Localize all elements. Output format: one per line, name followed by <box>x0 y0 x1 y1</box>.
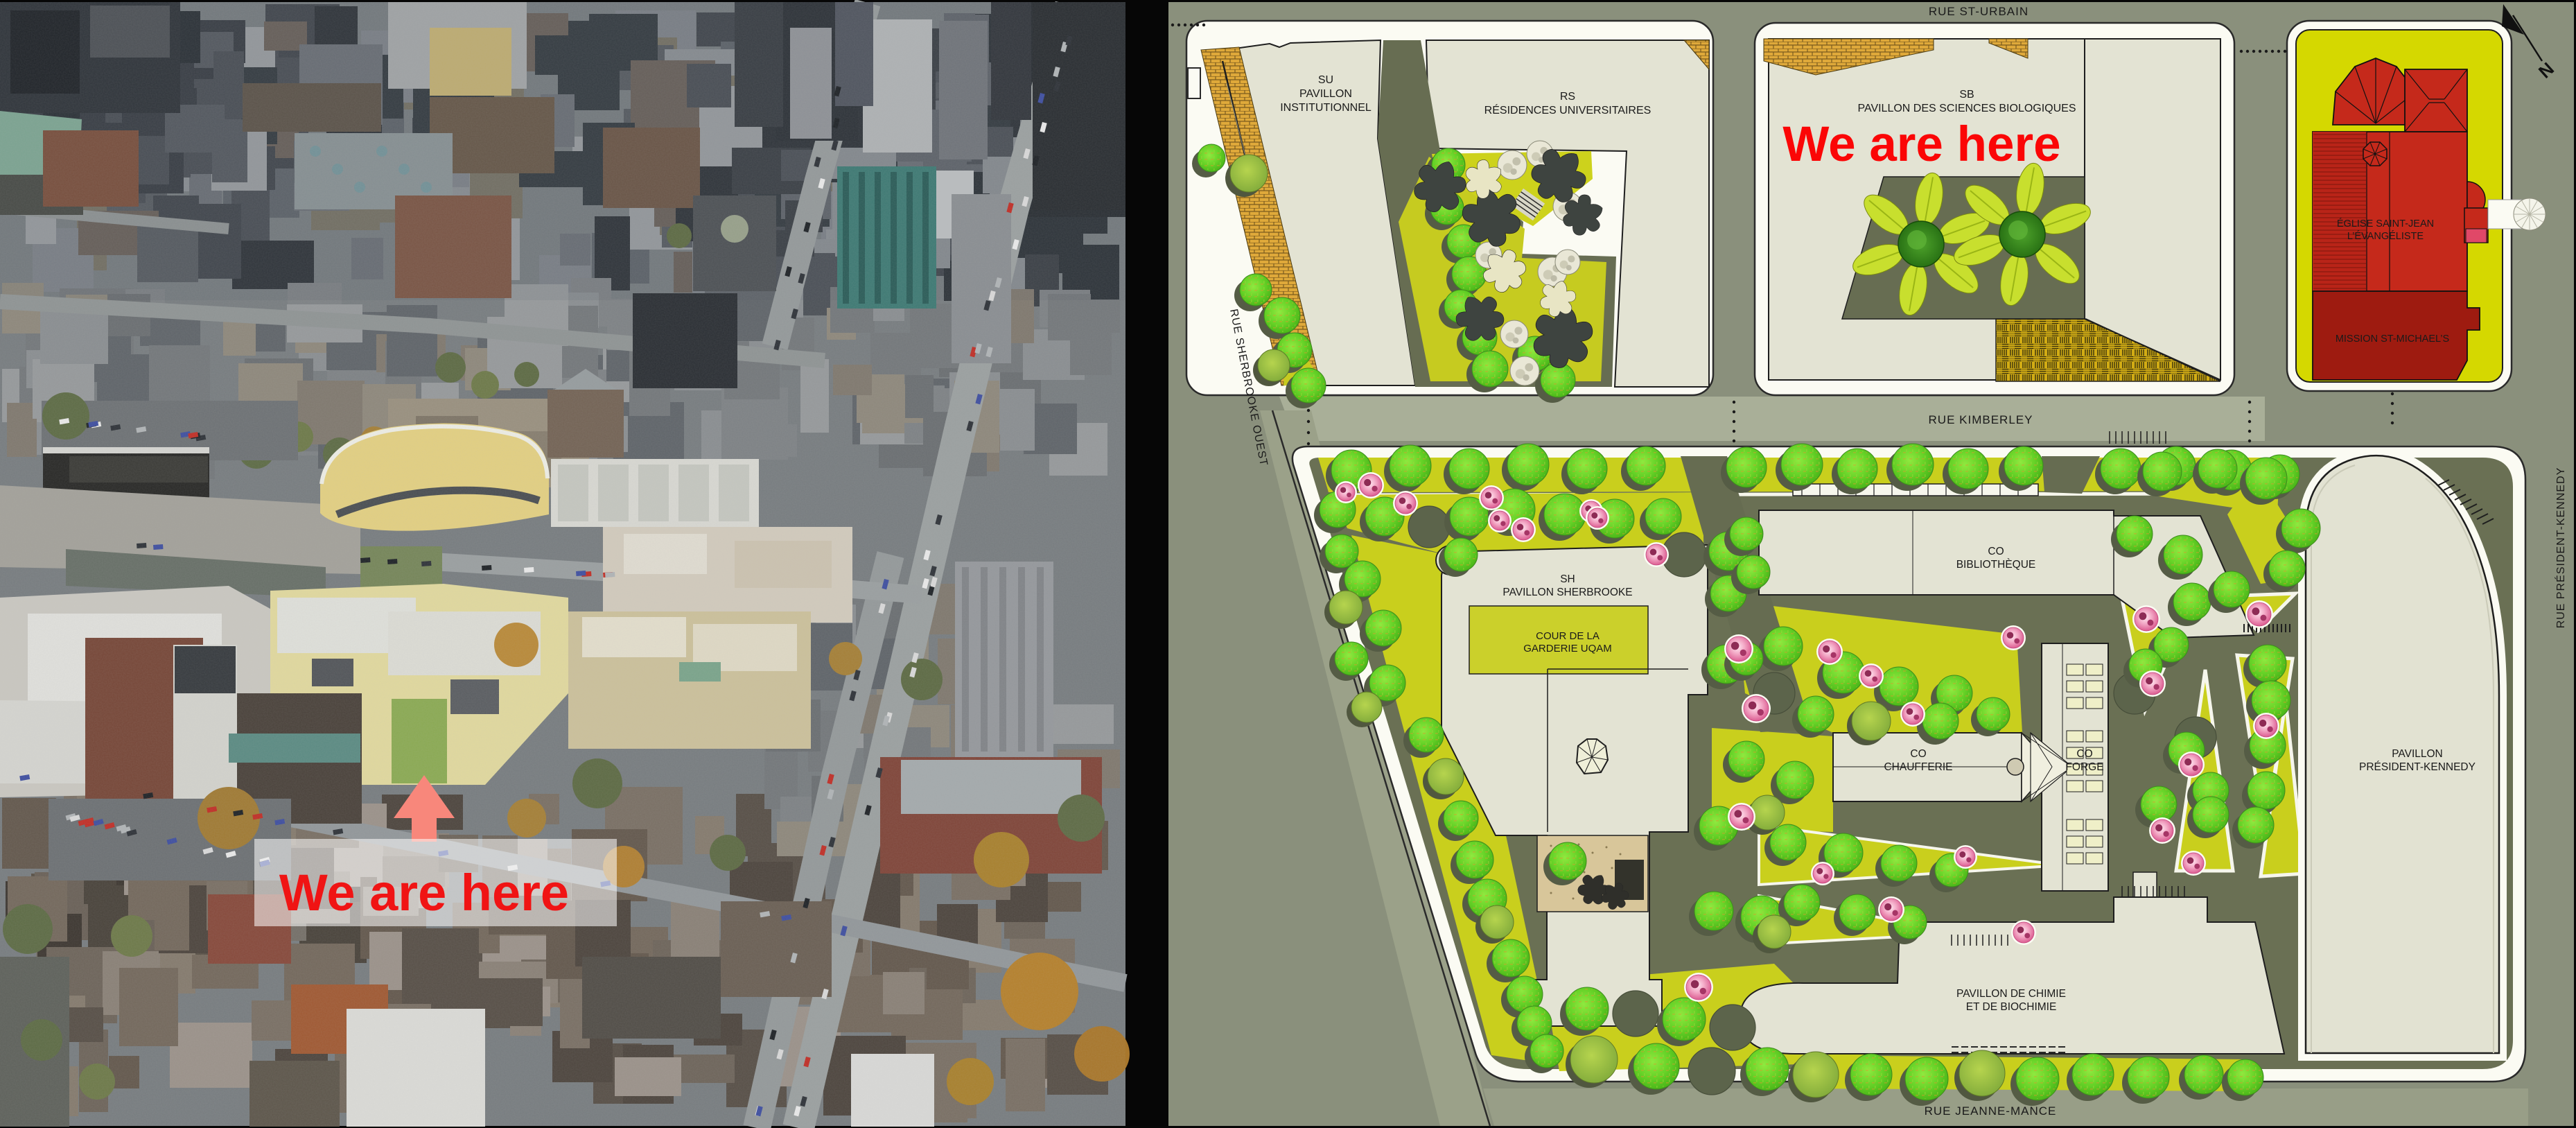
svg-text:RUE KIMBERLEY: RUE KIMBERLEY <box>1929 413 2033 426</box>
svg-text:RUE JEANNE-MANCE: RUE JEANNE-MANCE <box>1925 1104 2057 1118</box>
svg-text:PAVILLON DE CHIMIE: PAVILLON DE CHIMIE <box>1956 988 2066 1000</box>
svg-text:SU: SU <box>1318 74 1333 86</box>
svg-text:PRÉSIDENT-KENNEDY: PRÉSIDENT-KENNEDY <box>2359 761 2476 773</box>
svg-text:RS: RS <box>1560 91 1575 103</box>
svg-text:INSTITUTIONNEL: INSTITUTIONNEL <box>1280 102 1372 114</box>
svg-text:PAVILLON SHERBROOKE: PAVILLON SHERBROOKE <box>1502 587 1632 598</box>
svg-text:PAVILLON: PAVILLON <box>1299 88 1352 100</box>
svg-text:ÉGLISE SAINT-JEAN: ÉGLISE SAINT-JEAN <box>2337 218 2434 229</box>
svg-text:L’ÉVANGÉLISTE: L’ÉVANGÉLISTE <box>2347 230 2424 242</box>
svg-text:SH: SH <box>1560 573 1575 585</box>
svg-text:MISSION ST-MICHAEL’S: MISSION ST-MICHAEL’S <box>2336 333 2449 345</box>
svg-text:COUR DE LA: COUR DE LA <box>1536 630 1600 642</box>
svg-text:PAVILLON: PAVILLON <box>2392 748 2443 760</box>
svg-text:BIBLIOTHÈQUE: BIBLIOTHÈQUE <box>1956 559 2036 571</box>
svg-text:CHAUFFERIE: CHAUFFERIE <box>1884 761 1952 773</box>
svg-text:PAVILLON DES SCIENCES BIOLOGIQ: PAVILLON DES SCIENCES BIOLOGIQUES <box>1857 103 2076 114</box>
svg-text:SB: SB <box>1959 89 1974 101</box>
svg-text:CO: CO <box>2076 748 2092 760</box>
svg-text:FORGE: FORGE <box>2065 761 2103 773</box>
svg-text:CO: CO <box>1988 546 2004 557</box>
svg-text:We are here: We are here <box>1782 117 2060 172</box>
svg-text:RUE ST-URBAIN: RUE ST-URBAIN <box>1929 5 2029 18</box>
svg-text:RÉSIDENCES UNIVERSITAIRES: RÉSIDENCES UNIVERSITAIRES <box>1484 103 1651 116</box>
svg-text:GARDERIE UQAM: GARDERIE UQAM <box>1523 643 1612 654</box>
svg-text:ET DE BIOCHIMIE: ET DE BIOCHIMIE <box>1966 1001 2057 1013</box>
svg-text:CO: CO <box>1910 748 1926 760</box>
svg-text:We are here: We are here <box>279 864 569 921</box>
svg-text:RUE PRÉSIDENT-KENNEDY: RUE PRÉSIDENT-KENNEDY <box>2554 467 2567 629</box>
